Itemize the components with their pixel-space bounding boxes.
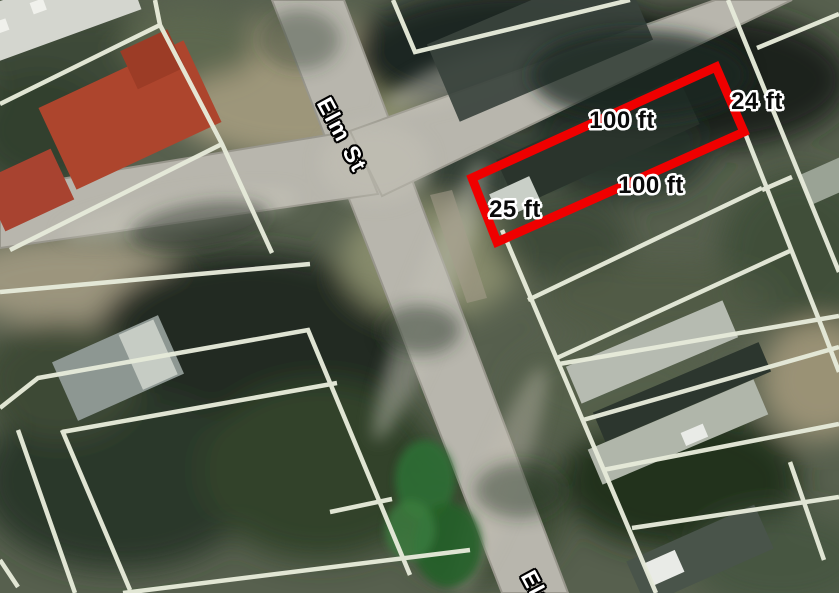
aerial-basemap: [0, 0, 839, 593]
dimension-label-top: 100 ft: [589, 109, 655, 133]
dimension-label-bottom: 100 ft: [618, 174, 684, 198]
dimension-label-right: 24 ft: [731, 90, 783, 114]
map-viewport[interactable]: Elm St Elm St 100 ft 24 ft 100 ft 25 ft: [0, 0, 839, 593]
dimension-label-left: 25 ft: [489, 198, 541, 222]
